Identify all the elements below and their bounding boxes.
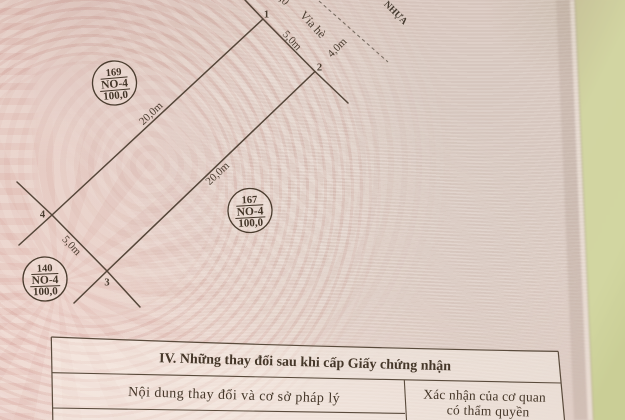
- svg-text:có thẩm quyền: có thẩm quyền: [447, 402, 530, 419]
- svg-text:4,0: 4,0: [273, 0, 291, 8]
- svg-text:140: 140: [37, 263, 53, 275]
- svg-text:2: 2: [317, 63, 322, 74]
- svg-text:167: 167: [241, 195, 257, 207]
- svg-text:3: 3: [104, 278, 109, 289]
- svg-text:Xác nhận của cơ quan: Xác nhận của cơ quan: [423, 387, 546, 405]
- svg-text:Vỉa hè: Vỉa hè: [297, 8, 329, 41]
- svg-text:NHỰA: NHỰA: [381, 0, 409, 27]
- svg-text:5,0m: 5,0m: [59, 233, 83, 258]
- svg-text:5,0m: 5,0m: [280, 28, 304, 53]
- svg-text:100,0: 100,0: [103, 89, 129, 103]
- svg-text:100,0: 100,0: [238, 217, 264, 230]
- svg-text:4,0m: 4,0m: [325, 35, 350, 60]
- svg-text:4: 4: [40, 210, 46, 221]
- svg-text:100,0: 100,0: [33, 285, 59, 298]
- svg-text:1: 1: [264, 10, 269, 21]
